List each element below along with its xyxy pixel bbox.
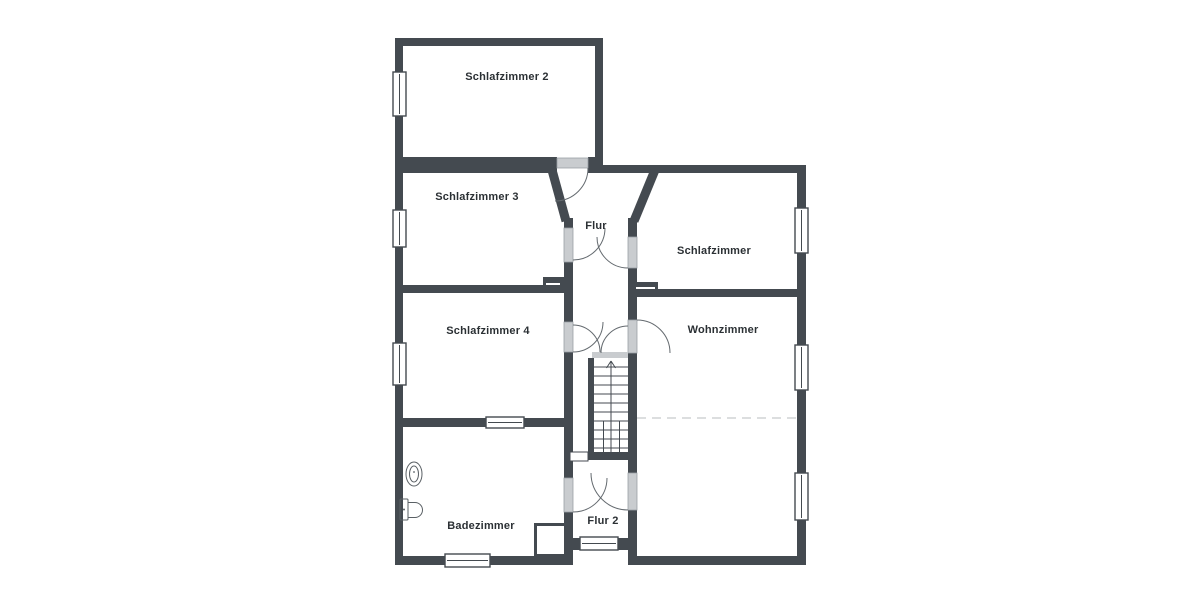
window-schlafzimmer2-left	[393, 72, 406, 116]
window-stairwell-small	[570, 452, 588, 461]
window-schlafzimmer4-left	[393, 343, 406, 385]
door-schlafzimmer2	[557, 158, 588, 168]
door-wohnzimmer-flur2	[628, 473, 637, 510]
room-label-schlafzimmer: Schlafzimmer	[677, 245, 751, 257]
room-label-schlafzimmer-4: Schlafzimmer 4	[446, 325, 530, 337]
shaft-icon	[536, 525, 566, 556]
floor-plan: Schlafzimmer 2 Schlafzimmer 3 Flur Schla…	[0, 0, 1200, 600]
window-schlafzimmer-right	[795, 208, 808, 253]
sink-icon	[406, 462, 422, 486]
room-label-schlafzimmer-3: Schlafzimmer 3	[435, 191, 519, 203]
door-wohnzimmer-flur	[628, 320, 637, 353]
walls	[395, 38, 806, 565]
stairs-icon	[594, 361, 628, 452]
toilet-icon	[400, 499, 423, 520]
room-label-wohnzimmer: Wohnzimmer	[688, 324, 759, 336]
window-badezimmer-bottom	[445, 554, 490, 567]
door-schlafzimmer4	[564, 322, 573, 352]
door-badezimmer	[564, 478, 573, 512]
window-flur2-bottom	[580, 537, 618, 550]
room-label-schlafzimmer-2: Schlafzimmer 2	[465, 71, 549, 83]
window-wohnzimmer-right-2	[795, 473, 808, 520]
room-label-badezimmer: Badezimmer	[447, 520, 514, 532]
room-label-flur: Flur	[585, 220, 607, 232]
stair-threshold	[592, 352, 628, 358]
window-wohnzimmer-right-1	[795, 345, 808, 390]
room-label-flur-2: Flur 2	[587, 515, 618, 527]
angled-walls	[552, 170, 655, 221]
door-schlafzimmer3	[564, 228, 573, 262]
door-schlafzimmer	[628, 237, 637, 268]
window-interior-badezimmer	[486, 417, 524, 428]
floor-plan-canvas	[0, 0, 1200, 600]
window-schlafzimmer3-left	[393, 210, 406, 247]
